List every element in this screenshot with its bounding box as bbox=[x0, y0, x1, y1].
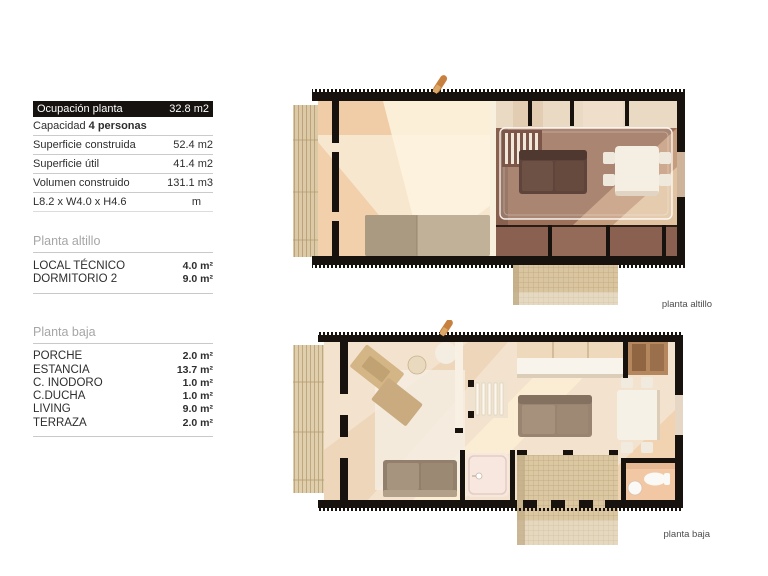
area-row: C.DUCHA 1.0 m² bbox=[33, 389, 213, 402]
area-row-value: 2.0 m² bbox=[183, 350, 213, 362]
area-row-label: LIVING bbox=[33, 403, 71, 415]
sofa bbox=[518, 395, 592, 437]
section-title-planta-baja: Planta baja bbox=[33, 325, 213, 344]
area-row-label: TERRAZA bbox=[33, 417, 87, 429]
terraza-deck bbox=[517, 450, 618, 545]
kitchen bbox=[517, 340, 623, 378]
wardrobe bbox=[628, 340, 668, 375]
spec-row-value: 41.4 m2 bbox=[173, 158, 213, 170]
bottom-wall-teeth bbox=[318, 508, 683, 511]
capacity-value: 4 personas bbox=[89, 120, 147, 132]
floorplan-baja bbox=[283, 320, 713, 570]
toilet bbox=[644, 473, 666, 486]
occupancy-value: 32.8 m2 bbox=[169, 103, 209, 115]
plan-label-baja: planta baja bbox=[664, 529, 710, 540]
area-row-label: C. INODORO bbox=[33, 377, 103, 389]
spec-row: L8.2 x W4.0 x H4.6 m bbox=[33, 193, 213, 212]
shower bbox=[460, 450, 515, 500]
area-row-label: DORMITORIO 2 bbox=[33, 273, 117, 285]
area-row: TERRAZA 2.0 m² bbox=[33, 416, 213, 429]
spec-row: Superficie útil 41.4 m2 bbox=[33, 155, 213, 174]
spec-row-label: Superficie construida bbox=[33, 139, 136, 151]
spec-row-value: m bbox=[192, 196, 213, 208]
bathroom bbox=[621, 458, 675, 500]
spec-row-value: 52.4 m2 bbox=[173, 139, 213, 151]
area-row-label: PORCHE bbox=[33, 350, 82, 362]
spec-row: Volumen construido 131.1 m3 bbox=[33, 174, 213, 193]
area-row: LIVING 9.0 m² bbox=[33, 403, 213, 416]
spec-row-label: L8.2 x W4.0 x H4.6 bbox=[33, 196, 127, 208]
side-table bbox=[408, 356, 426, 374]
floorplan-baja-drawing bbox=[283, 320, 713, 570]
sofa bbox=[519, 150, 587, 194]
sink bbox=[628, 481, 642, 495]
round-chair bbox=[435, 342, 457, 364]
capacity-label: Capacidad bbox=[33, 120, 89, 132]
area-row: C. INODORO 1.0 m² bbox=[33, 376, 213, 389]
area-row: LOCAL TÉCNICO 4.0 m² bbox=[33, 259, 213, 272]
occupancy-header-row: Ocupación planta 32.8 m2 bbox=[33, 101, 213, 117]
area-row-label: ESTANCIA bbox=[33, 364, 90, 376]
floorplan-altillo-drawing bbox=[283, 72, 713, 312]
area-row-value: 13.7 m² bbox=[177, 364, 213, 376]
area-group-baja: PORCHE 2.0 m² ESTANCIA 13.7 m² C. INODOR… bbox=[33, 344, 213, 438]
area-group-altillo: LOCAL TÉCNICO 4.0 m² DORMITORIO 2 9.0 m² bbox=[33, 253, 213, 294]
altillo-bottom-deck bbox=[513, 265, 618, 305]
page: Ocupación planta 32.8 m2 Capacidad 4 per… bbox=[0, 0, 768, 576]
spec-row-value: 131.1 m3 bbox=[167, 177, 213, 189]
area-row: DORMITORIO 2 9.0 m² bbox=[33, 272, 213, 285]
spec-row: Superficie construida 52.4 m2 bbox=[33, 136, 213, 155]
capacity-row: Capacidad 4 personas bbox=[33, 117, 213, 136]
occupancy-label: Ocupación planta bbox=[37, 103, 123, 115]
area-row-value: 2.0 m² bbox=[183, 417, 213, 429]
area-row-value: 9.0 m² bbox=[183, 403, 213, 415]
spec-row-label: Volumen construido bbox=[33, 177, 130, 189]
plan-label-altillo: planta altillo bbox=[662, 299, 712, 310]
area-row: PORCHE 2.0 m² bbox=[33, 350, 213, 363]
floorplan-altillo bbox=[283, 72, 713, 312]
area-row-value: 4.0 m² bbox=[183, 260, 213, 272]
area-row-value: 1.0 m² bbox=[183, 390, 213, 402]
stairs bbox=[468, 380, 508, 418]
baja-interior bbox=[324, 340, 675, 500]
spec-panel: Ocupación planta 32.8 m2 Capacidad 4 per… bbox=[33, 101, 213, 437]
living-sofa bbox=[383, 460, 457, 497]
spec-row-label: Superficie útil bbox=[33, 158, 99, 170]
capacity-text: Capacidad 4 personas bbox=[33, 120, 147, 132]
altillo-interior bbox=[318, 101, 677, 256]
area-row-label: C.DUCHA bbox=[33, 390, 85, 402]
area-row-value: 9.0 m² bbox=[183, 273, 213, 285]
area-row-value: 1.0 m² bbox=[183, 377, 213, 389]
section-title-planta-altillo: Planta altillo bbox=[33, 234, 213, 253]
area-row: ESTANCIA 13.7 m² bbox=[33, 363, 213, 376]
area-row-label: LOCAL TÉCNICO bbox=[33, 260, 125, 272]
